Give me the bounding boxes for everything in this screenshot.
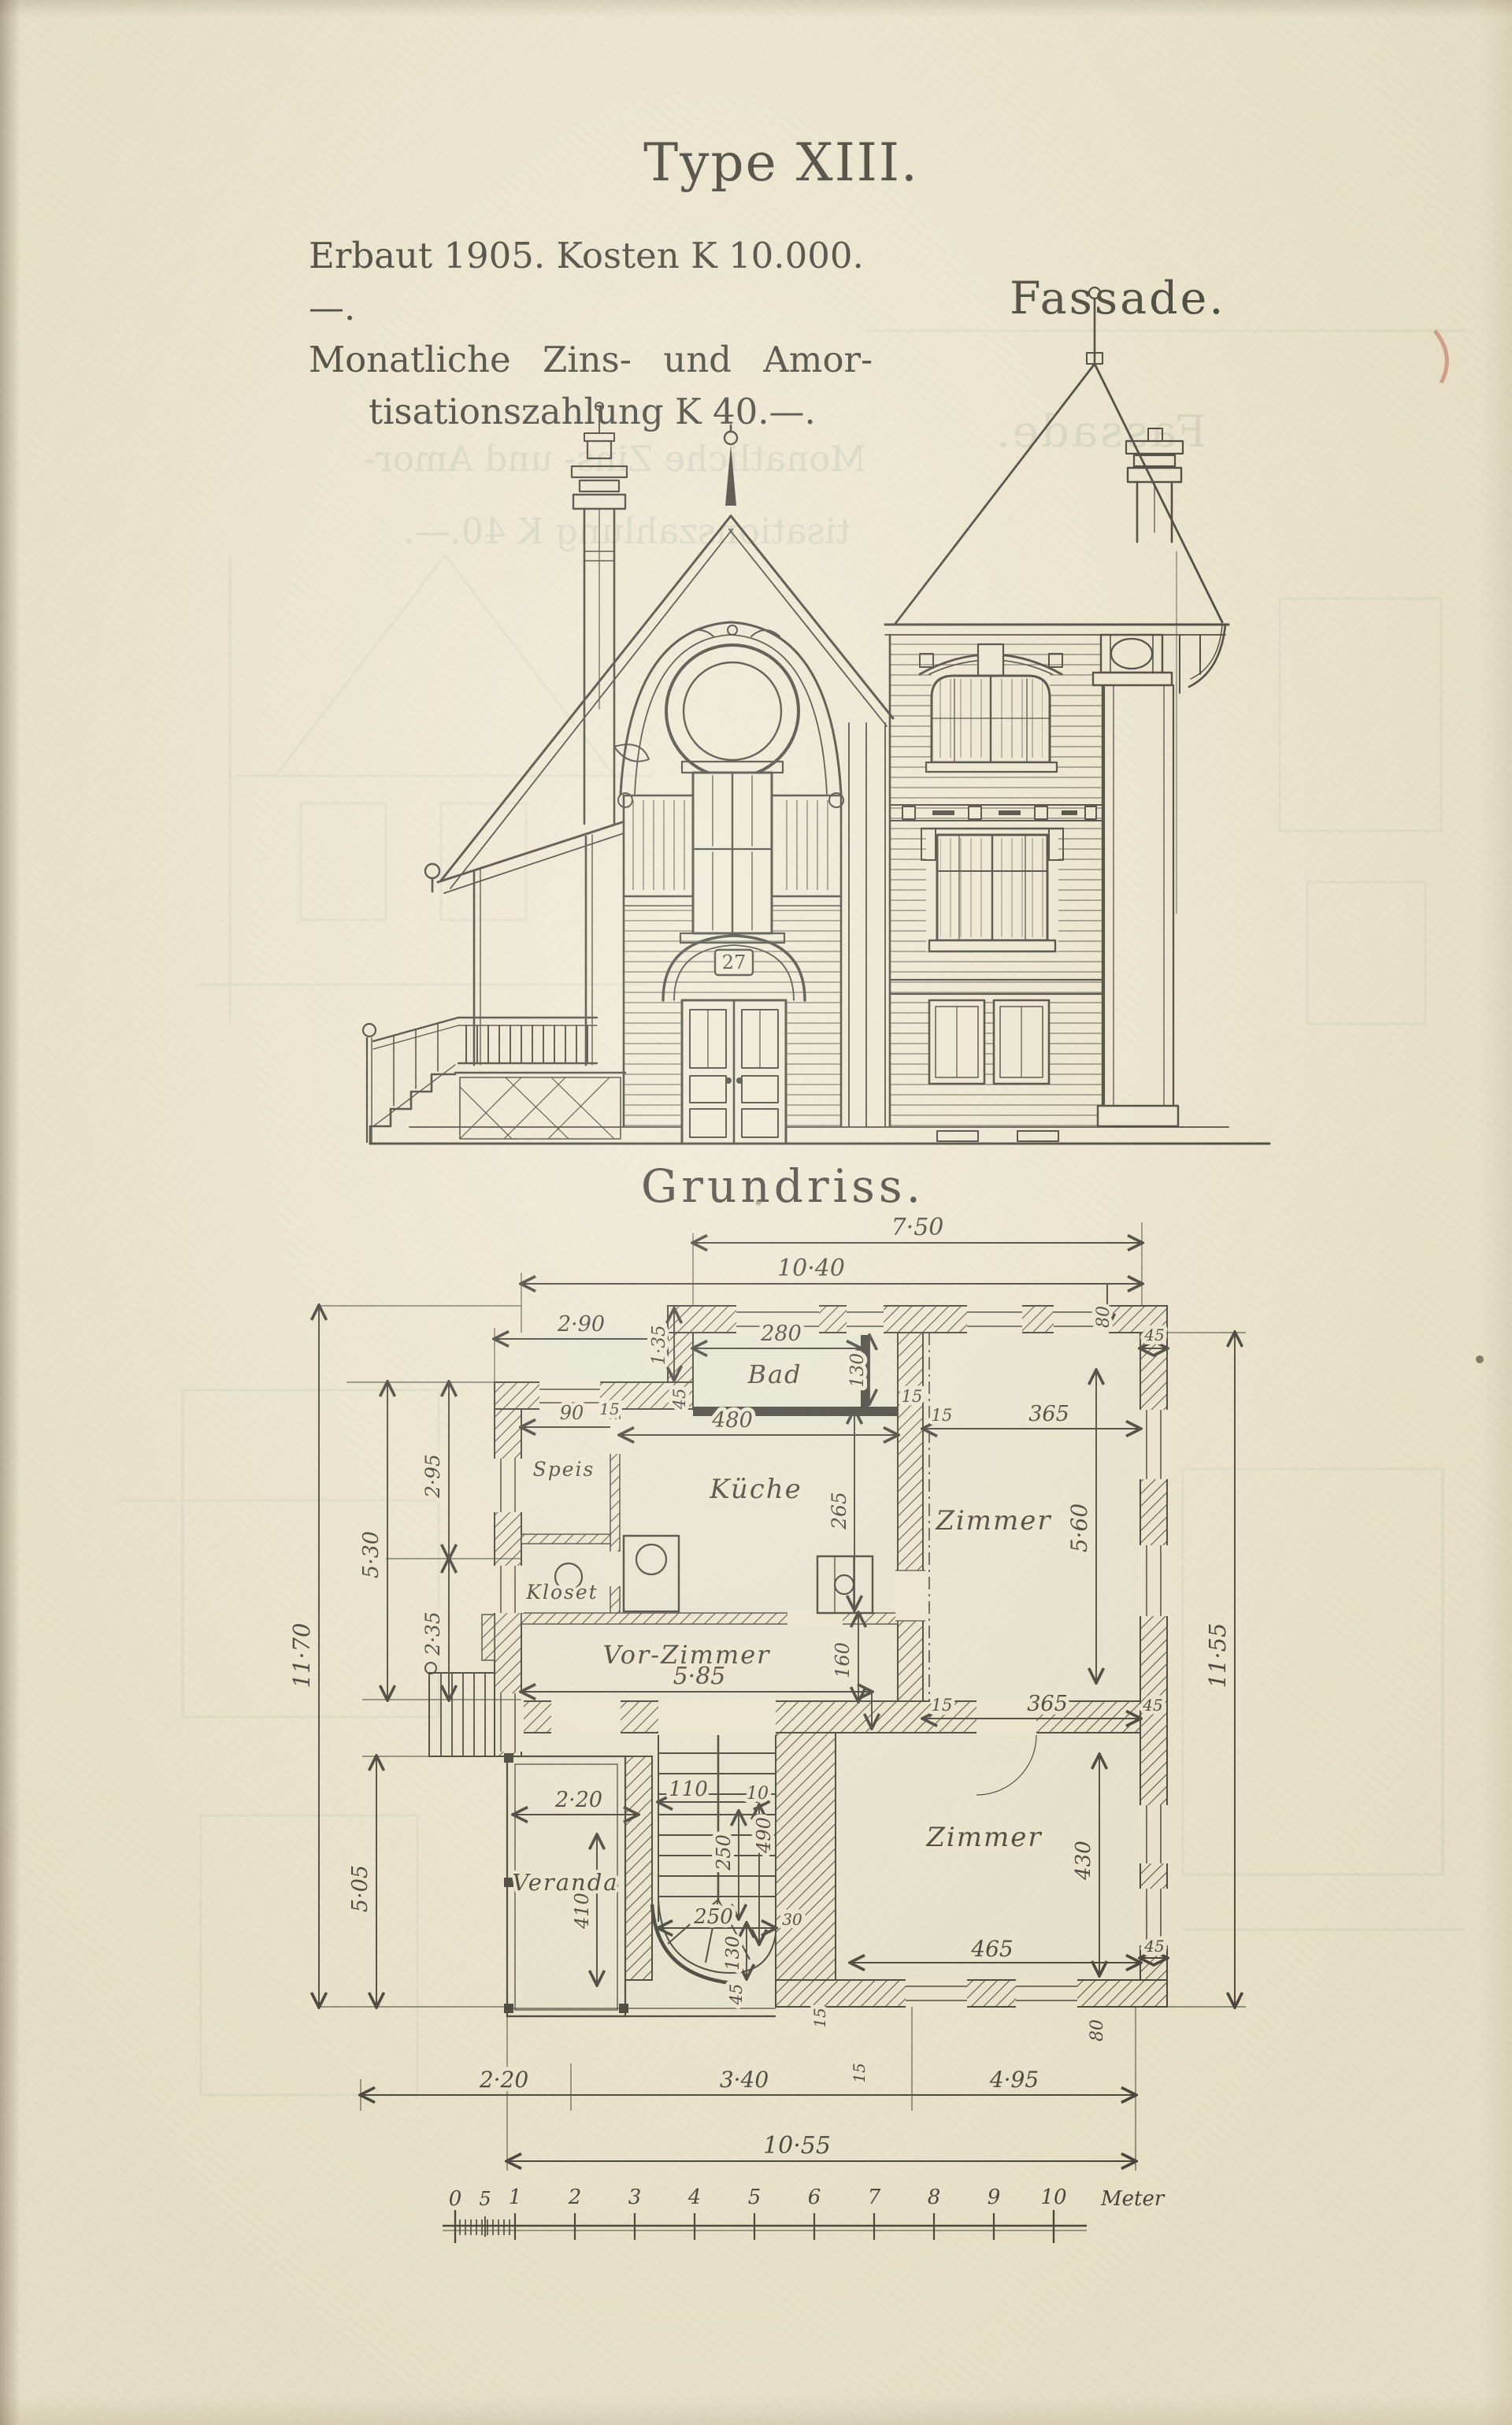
scale-tick-0: 0 [449,2187,462,2211]
door-number: 27 [722,951,747,973]
dim-130-bad: 130 [847,1353,868,1388]
dim-495: 4·95 [989,2067,1039,2093]
dim-465: 465 [970,1936,1013,1962]
scale-tick-3: 3 [628,2186,642,2209]
dim-10: 10 [747,1784,769,1804]
room-label-vorzimmer: Vor-Zimmer [603,1640,771,1670]
dim-490: 490 [753,1817,775,1854]
dim-15c: 15 [932,1696,953,1715]
scale-tick-5: 5 [748,2186,762,2209]
dim-365b: 365 [1027,1692,1068,1716]
dim-160: 160 [832,1642,854,1678]
dim-110: 110 [669,1778,708,1801]
entry-steps [425,1663,495,1756]
ink-speck-small [756,1200,762,1206]
dim-45d: 45 [727,1984,746,2006]
dim-15e: 15 [810,2008,829,2027]
iron-bracket-icon [614,744,649,762]
dim-45a: 45 [670,1389,689,1411]
dim-505: 5·05 [348,1865,372,1912]
dim-235: 2·35 [421,1611,444,1656]
page-blemishes [756,331,1484,1363]
room-label-veranda: Veranda [512,1869,618,1896]
dim-1040: 10·40 [777,1255,845,1282]
floor-plan: 7·50 10·40 2·90 1·35 45 280 130 15 15 36… [288,1214,1246,2243]
dim-560: 5·60 [1066,1504,1092,1552]
upper-window [920,644,1062,772]
scale-tick-8: 8 [928,2186,941,2209]
scale-tick-6: 6 [808,2186,821,2209]
dim-45e: 45 [1143,1937,1164,1956]
dim-295: 2·95 [421,1454,444,1499]
dim-15f: 15 [599,1400,619,1418]
dim-430: 430 [1072,1841,1095,1881]
facade-drawing: 27 [363,287,1269,1144]
dim-290: 2·90 [557,1312,605,1337]
dim-30: 30 [782,1910,802,1929]
dim-80a: 80 [1094,1306,1114,1328]
room-label-kloset: Kloset [525,1581,598,1604]
dim-220b: 2·20 [479,2067,528,2093]
dim-90: 90 [560,1402,584,1424]
porch [363,822,625,1144]
middle-window [921,829,1063,951]
dim-480: 480 [711,1408,753,1433]
dim-15a: 15 [902,1387,923,1406]
architectural-drawings: 27 [0,0,1512,2425]
ink-speck [1476,1355,1484,1363]
dim-250v: 250 [713,1834,735,1871]
scale-tick-2: 2 [568,2186,582,2209]
scale-tick-9: 9 [988,2186,1001,2209]
dim-1170: 11·70 [288,1622,315,1688]
room-label-zimmer-bottom: Zimmer [925,1822,1042,1853]
dim-365a: 365 [1028,1402,1069,1426]
dim-220a: 2·20 [554,1788,602,1812]
dim-15d: 15 [850,2063,869,2082]
dim-280: 280 [760,1322,802,1346]
room-label-speis: Speis [533,1458,595,1481]
porch-steps [363,1018,458,1144]
dim-45b: 45 [1143,1326,1164,1344]
dim-135: 1·35 [649,1325,669,1365]
dim-410: 410 [571,1893,593,1930]
dim-530: 5·30 [359,1531,384,1578]
dim-130s: 130 [723,1936,743,1971]
balusters [466,1025,587,1063]
dim-1055: 10·55 [763,2132,831,2160]
dim-15b: 15 [932,1406,953,1425]
gable-window [680,762,784,943]
scale-tick-10: 10 [1040,2186,1066,2209]
red-pencil-mark [1435,331,1447,383]
ground-line [370,1127,1269,1144]
scale-bar: 0 5 1 2 3 4 5 6 7 8 9 10 Meter [443,2186,1165,2243]
dim-1155: 11·55 [1204,1622,1231,1688]
dim-80b: 80 [1088,2019,1107,2041]
dim-340: 3·40 [720,2067,769,2093]
corner-boards [849,723,885,1126]
room-label-bad: Bad [747,1359,802,1389]
dim-750: 7·50 [891,1214,944,1241]
porch-lattice [460,1077,614,1139]
scale-tick-1: 1 [509,2186,522,2209]
scale-tick-7: 7 [868,2186,881,2209]
scale-unit: Meter [1100,2187,1165,2211]
left-chimney [572,402,649,824]
scale-tick-half: 5 [479,2188,491,2210]
dim-250h: 250 [693,1905,733,1929]
scale-tick-4: 4 [687,2186,702,2209]
scale-tick-labels: 0 5 1 2 3 4 5 6 7 8 9 10 Meter [449,2186,1165,2211]
corner-pavilion [1093,635,1178,1126]
dim-265: 265 [828,1492,850,1530]
room-label-zimmer-top: Zimmer [935,1505,1051,1537]
room-label-kueche: Küche [709,1474,802,1505]
round-window [666,625,799,777]
dim-45c: 45 [1142,1696,1162,1715]
gable-finial-icon [724,425,737,506]
